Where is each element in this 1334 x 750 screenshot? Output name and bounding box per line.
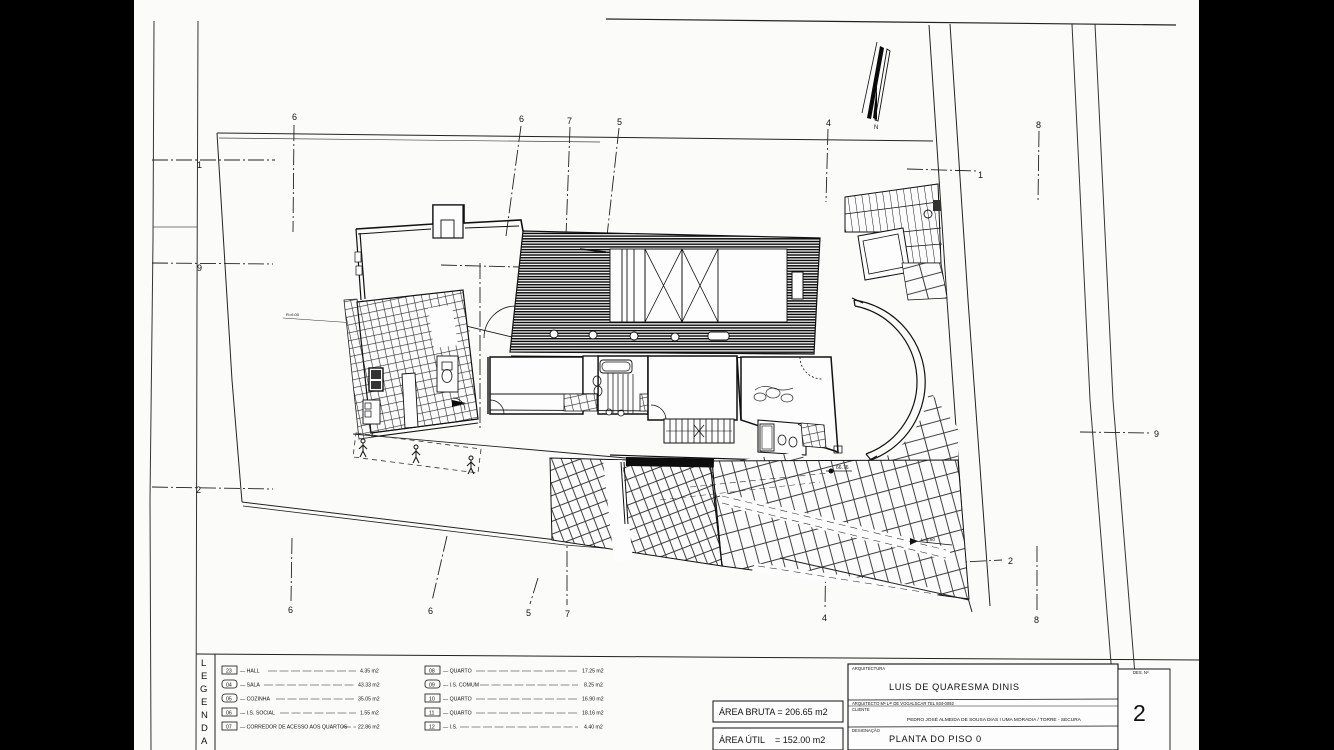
svg-text:DES. Nº: DES. Nº <box>1133 670 1149 675</box>
svg-text:R=6.00: R=6.00 <box>286 312 300 317</box>
svg-text:08: 08 <box>429 669 435 675</box>
svg-text:11: 11 <box>429 711 434 717</box>
svg-text:43.33 m2: 43.33 m2 <box>358 683 380 689</box>
svg-text:— SALA: — SALA <box>240 683 260 689</box>
svg-text:6: 6 <box>288 605 293 615</box>
svg-text:9: 9 <box>197 263 202 273</box>
svg-text:05: 05 <box>226 697 232 703</box>
svg-text:N: N <box>201 710 208 721</box>
svg-text:4: 4 <box>826 118 831 128</box>
svg-text:PEDRO JOSÉ ALMEIDA DE SOUS: PEDRO JOSÉ ALMEIDA DE SOUSA DIAS I UMA M… <box>907 716 1082 723</box>
svg-text:23: 23 <box>226 669 232 675</box>
svg-text:E: E <box>201 697 207 708</box>
svg-text:ÁREA BRUTA = 206.65 m2: ÁREA BRUTA = 206.65 m2 <box>719 707 828 717</box>
svg-text:PLANTA DO PISO 0: PLANTA DO PISO 0 <box>889 734 982 744</box>
svg-text:E: E <box>201 671 207 682</box>
svg-text:9: 9 <box>1154 429 1159 439</box>
svg-text:4: 4 <box>822 613 827 623</box>
svg-text:4.35 m2: 4.35 m2 <box>360 669 379 675</box>
svg-text:2: 2 <box>1008 556 1013 566</box>
svg-text:G: G <box>200 684 207 695</box>
svg-text:L=3.60: L=3.60 <box>921 537 935 542</box>
svg-text:— QUARTO: — QUARTO <box>443 711 472 717</box>
svg-text:7: 7 <box>565 609 570 619</box>
svg-text:— I.S. COMUM: — I.S. COMUM <box>443 683 479 689</box>
svg-text:2: 2 <box>1133 700 1146 726</box>
svg-text:— I.S.: — I.S. <box>443 725 457 731</box>
svg-text:— CORREDOR DE ACESSO AOS QUART: — CORREDOR DE ACESSO AOS QUARTOS <box>240 725 348 731</box>
svg-text:5: 5 <box>617 117 622 127</box>
svg-text:L: L <box>201 658 206 669</box>
svg-text:— QUARTO: — QUARTO <box>443 669 472 675</box>
svg-text:8: 8 <box>1036 120 1041 130</box>
svg-text:— COZINHA: — COZINHA <box>240 697 271 703</box>
svg-text:CLIENTE: CLIENTE <box>852 707 870 712</box>
svg-text:6: 6 <box>428 606 433 616</box>
svg-text:04: 04 <box>226 683 232 689</box>
svg-text:N: N <box>874 125 878 131</box>
svg-text:1: 1 <box>197 160 202 170</box>
svg-text:— QUARTO: — QUARTO <box>443 697 472 703</box>
svg-text:LUIS DE QUARESMA DINIS: LUIS DE QUARESMA DINIS <box>889 682 1020 692</box>
svg-text:DESIGNAÇÃO: DESIGNAÇÃO <box>852 728 881 733</box>
svg-text:8.25 m2: 8.25 m2 <box>584 683 603 689</box>
svg-text:35.05 m2: 35.05 m2 <box>358 697 380 703</box>
svg-text:12: 12 <box>429 725 435 731</box>
svg-text:1.55 m2: 1.55 m2 <box>360 711 379 717</box>
svg-text:5: 5 <box>526 608 531 618</box>
svg-text:8: 8 <box>1034 615 1039 625</box>
svg-text:06: 06 <box>226 711 232 717</box>
svg-text:17.25 m2: 17.25 m2 <box>582 669 604 675</box>
svg-text:— I.S. SOCIAL: — I.S. SOCIAL <box>240 711 275 717</box>
svg-text:A: A <box>201 736 208 747</box>
svg-text:2: 2 <box>196 485 201 495</box>
svg-text:6: 6 <box>519 114 524 124</box>
svg-text:22.86 m2: 22.86 m2 <box>358 725 380 731</box>
svg-text:07: 07 <box>226 725 232 731</box>
svg-text:6: 6 <box>292 112 297 122</box>
svg-text:ARQUITECTO Mª Lªº DE VOGALSC: ARQUITECTO Mª Lªº DE VOGALSCAR TEL 934-0… <box>852 701 955 706</box>
svg-text:D: D <box>201 723 208 734</box>
svg-text:ÁREA ÚTIL = 152.00 m2: ÁREA ÚTIL = 152.00 m2 <box>719 735 825 745</box>
svg-text:ARQUITECTURA: ARQUITECTURA <box>852 666 885 671</box>
svg-text:10: 10 <box>429 697 435 703</box>
svg-text:7: 7 <box>567 116 572 126</box>
svg-text:18.16 m2: 18.16 m2 <box>582 711 604 717</box>
svg-text:— HALL: — HALL <box>240 669 260 675</box>
svg-text:16.90 m2: 16.90 m2 <box>582 697 604 703</box>
svg-text:66.76: 66.76 <box>836 465 849 471</box>
svg-text:09: 09 <box>429 683 435 689</box>
svg-text:1: 1 <box>978 170 983 180</box>
svg-text:4.40 m2: 4.40 m2 <box>584 725 603 731</box>
